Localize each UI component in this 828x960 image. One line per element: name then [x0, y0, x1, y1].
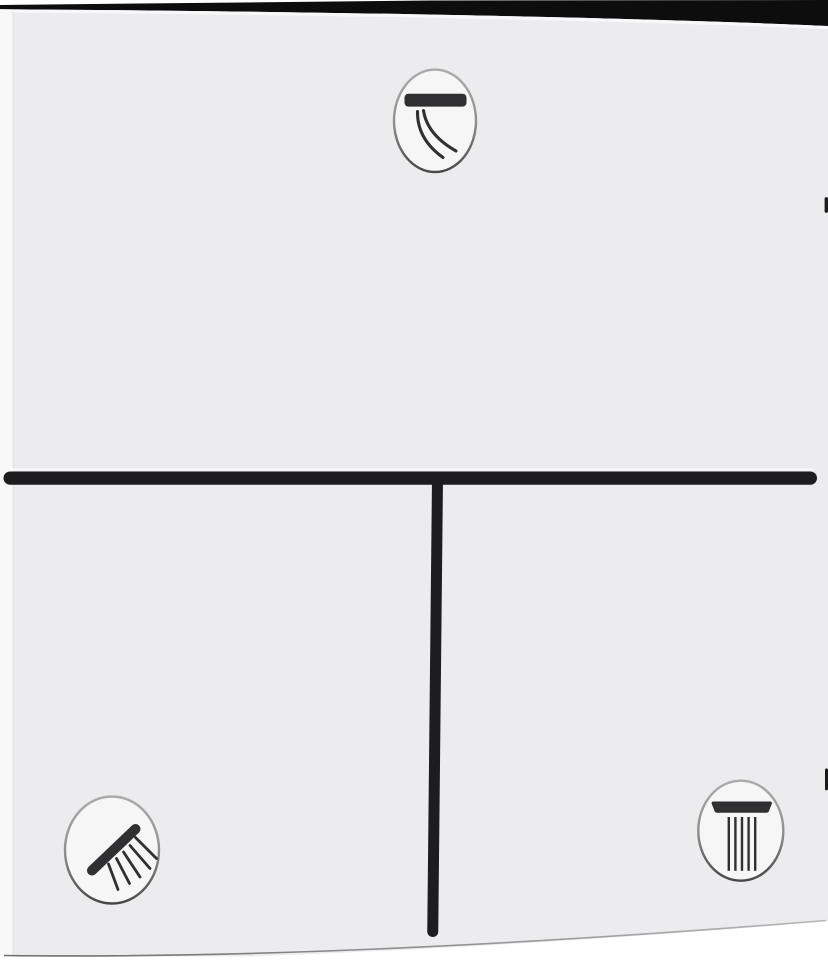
right-edge-notch-upper	[825, 197, 828, 212]
hand-shower-button[interactable]	[65, 797, 159, 904]
overhead-shower-button[interactable]	[698, 781, 783, 881]
horizontal-divider	[4, 472, 818, 485]
bath-spout-button-face	[394, 70, 476, 172]
divider-top-highlight	[6, 468, 814, 471]
overhead-shower-icon-head	[712, 802, 772, 813]
product-photo	[0, 0, 828, 960]
bath-spout-icon-spout-bar	[405, 94, 467, 107]
shower-trim-plate-illustration	[0, 0, 828, 960]
bath-spout-button[interactable]	[394, 70, 476, 172]
